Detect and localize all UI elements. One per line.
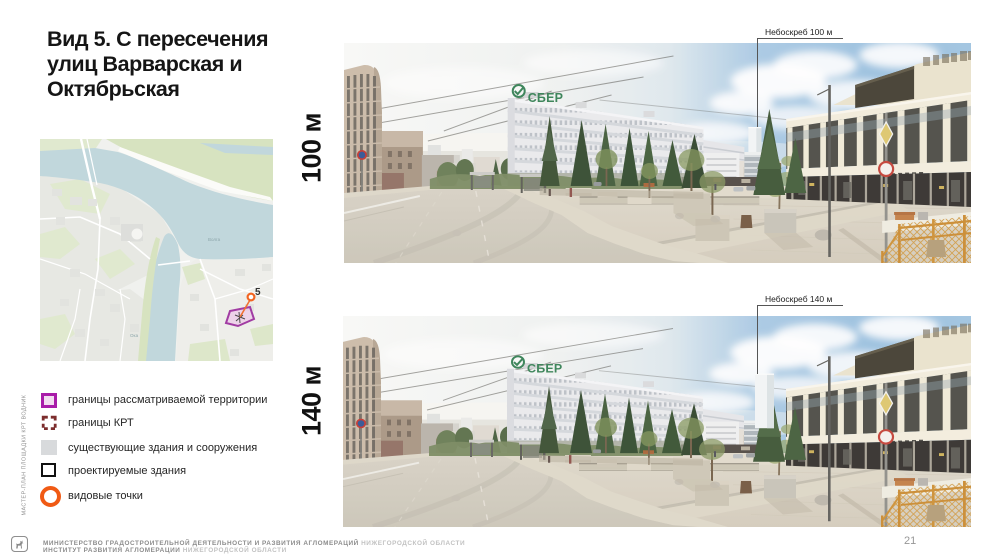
svg-text:5: 5 — [255, 287, 261, 298]
svg-text:Волга: Волга — [208, 237, 221, 242]
svg-text:Ока: Ока — [130, 333, 139, 338]
